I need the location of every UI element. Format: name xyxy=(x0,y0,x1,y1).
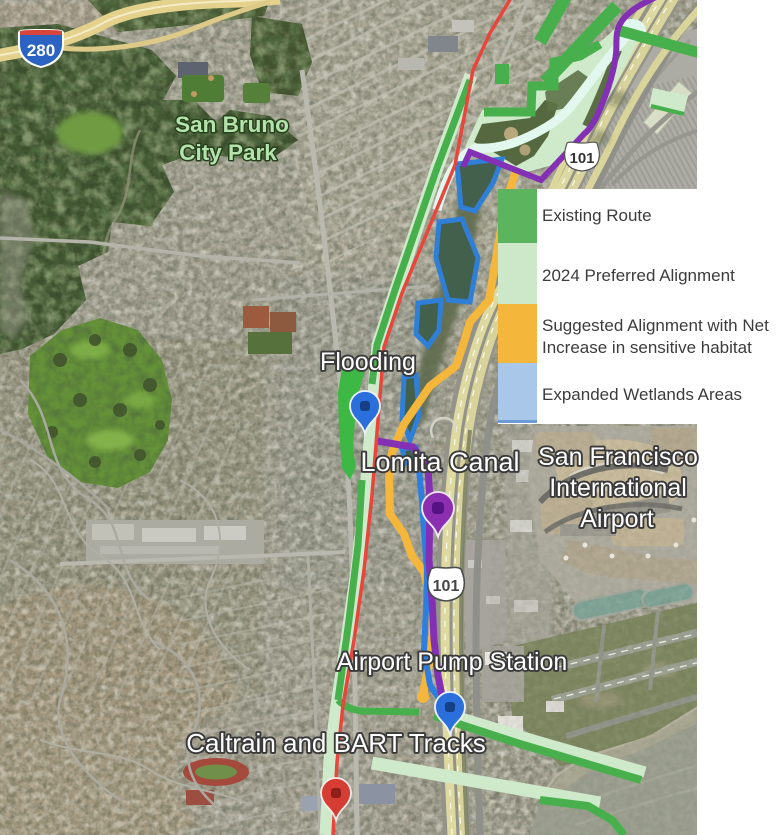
svg-text:City Park: City Park xyxy=(179,140,277,165)
svg-text:Flooding: Flooding xyxy=(320,348,416,376)
svg-text:International: International xyxy=(549,474,687,502)
svg-text:Suggested Alignment with Net: Suggested Alignment with Net xyxy=(542,316,769,335)
svg-text:Caltrain and BART Tracks: Caltrain and BART Tracks xyxy=(186,728,486,758)
svg-text:Increase in sensitive habitat: Increase in sensitive habitat xyxy=(542,338,752,357)
svg-text:San Francisco: San Francisco xyxy=(538,443,698,471)
svg-text:Expanded Wetlands Areas: Expanded Wetlands Areas xyxy=(542,385,742,404)
svg-text:Airport Pump Station: Airport Pump Station xyxy=(337,648,568,676)
svg-text:2024 Preferred Alignment: 2024 Preferred Alignment xyxy=(542,266,735,285)
svg-text:101: 101 xyxy=(569,150,594,167)
svg-text:Existing Route: Existing Route xyxy=(542,206,652,225)
svg-text:San Bruno: San Bruno xyxy=(175,112,289,137)
svg-text:280: 280 xyxy=(27,41,55,60)
svg-text:Airport: Airport xyxy=(580,505,654,533)
svg-text:Lomita Canal: Lomita Canal xyxy=(360,447,519,477)
svg-text:101: 101 xyxy=(433,578,460,595)
